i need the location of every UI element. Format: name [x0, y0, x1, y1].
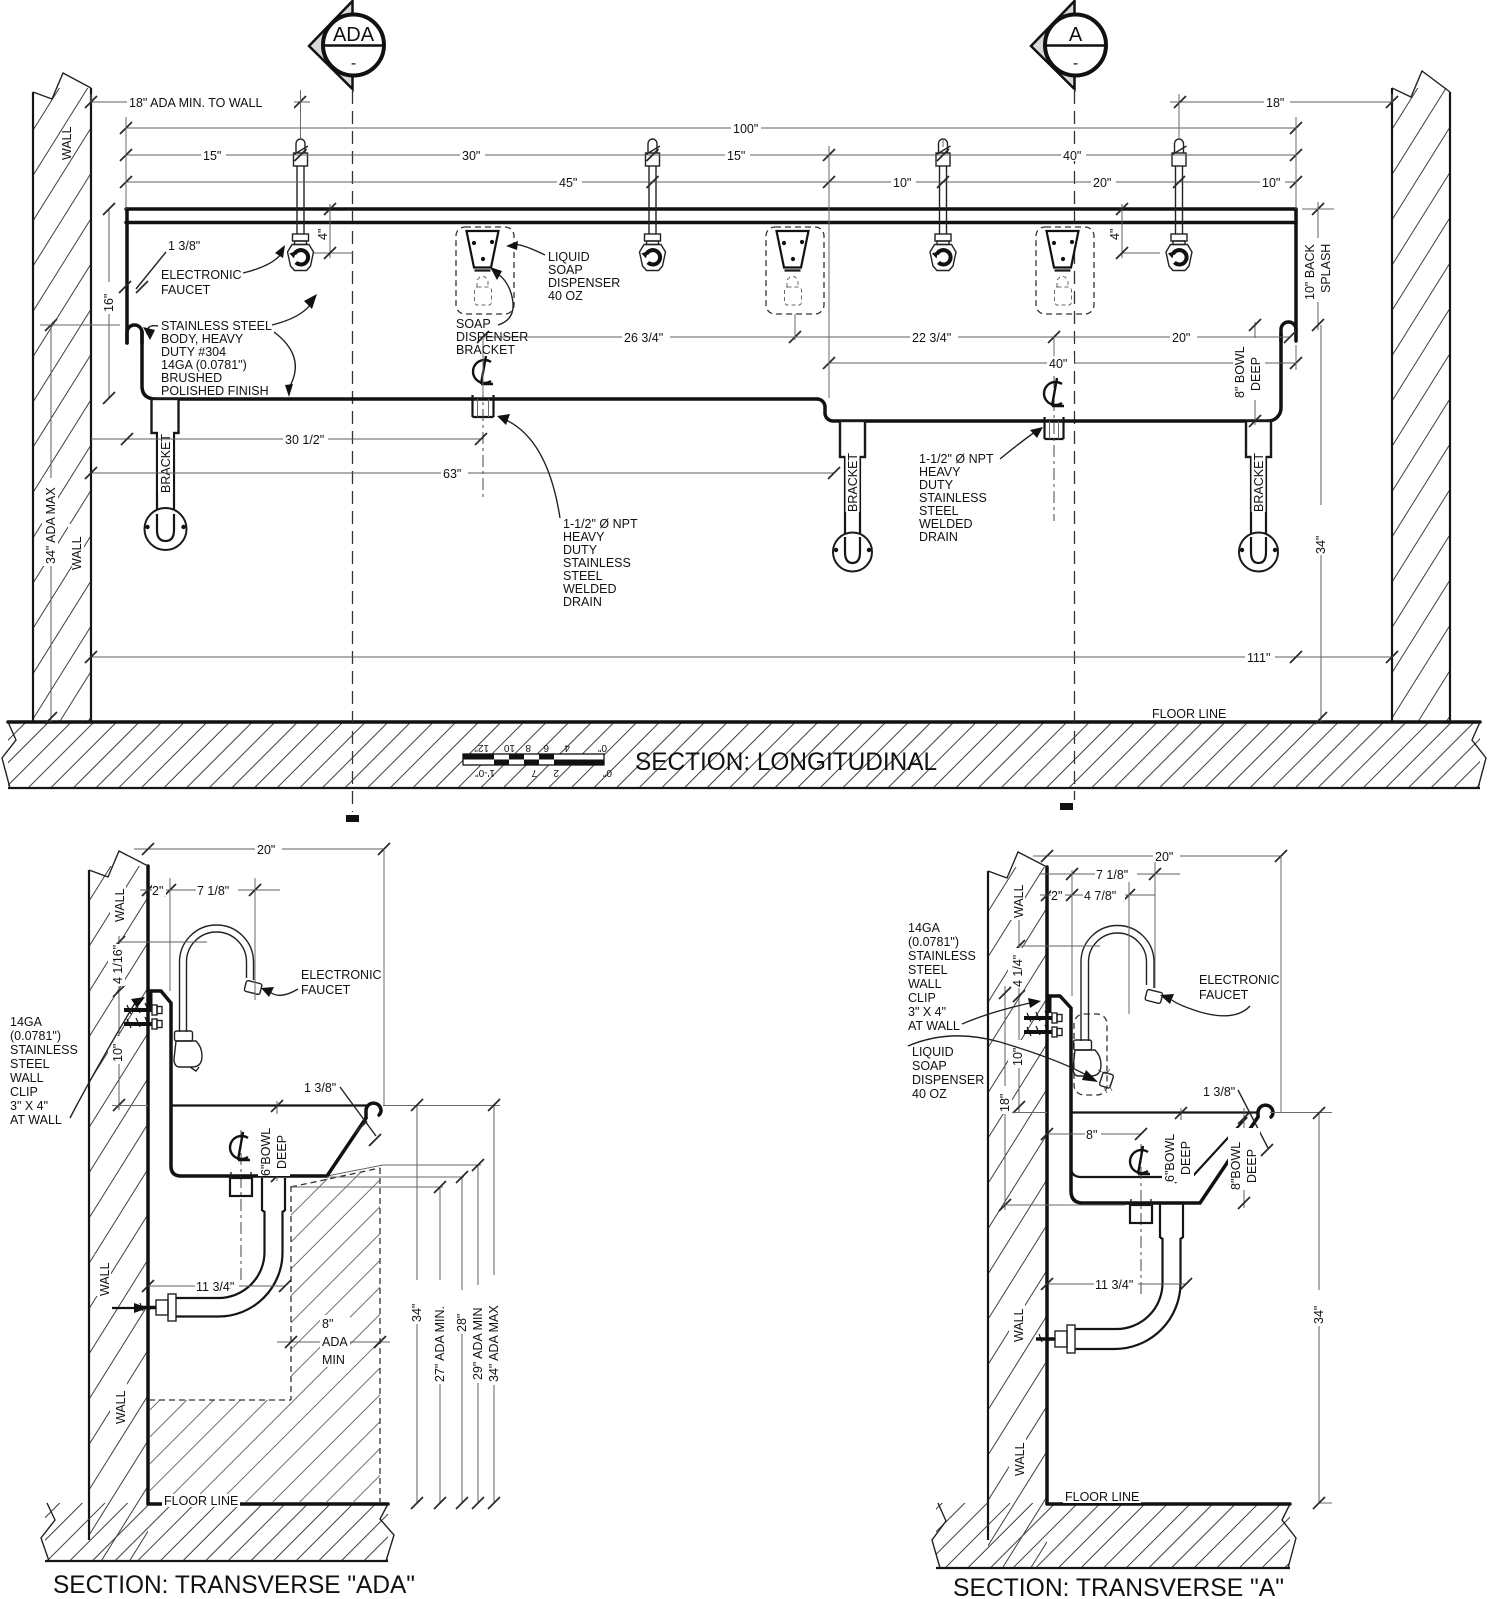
svg-text:AT WALL: AT WALL	[908, 1019, 960, 1033]
svg-text:1 3/8": 1 3/8"	[304, 1081, 336, 1095]
svg-text:DRAIN: DRAIN	[563, 595, 602, 609]
svg-text:14GA: 14GA	[908, 921, 941, 935]
svg-text:WELDED: WELDED	[563, 582, 616, 596]
svg-text:BRACKET: BRACKET	[846, 453, 860, 512]
svg-text:14GA (0.0781"): 14GA (0.0781")	[161, 358, 247, 372]
svg-text:34" ADA MAX: 34" ADA MAX	[44, 487, 58, 564]
svg-text:FAUCET: FAUCET	[1199, 988, 1249, 1002]
svg-text:CLIP: CLIP	[908, 991, 936, 1005]
svg-text:4 1/16": 4 1/16"	[111, 945, 125, 984]
svg-text:30": 30"	[462, 149, 480, 163]
svg-text:-: -	[1073, 55, 1078, 72]
svg-text:STAINLESS: STAINLESS	[919, 491, 987, 505]
svg-text:STAINLESS STEEL: STAINLESS STEEL	[161, 319, 272, 333]
svg-text:12": 12"	[474, 742, 489, 753]
svg-text:-: -	[351, 55, 356, 72]
svg-text:1'-0": 1'-0"	[475, 767, 495, 778]
svg-text:WALL: WALL	[60, 126, 74, 160]
svg-text:DUTY #304: DUTY #304	[161, 345, 226, 359]
svg-text:WELDED: WELDED	[919, 517, 972, 531]
svg-text:SECTION: TRANSVERSE "ADA": SECTION: TRANSVERSE "ADA"	[53, 1571, 415, 1599]
svg-text:A: A	[1069, 24, 1083, 46]
svg-text:SOAP: SOAP	[912, 1059, 947, 1073]
svg-text:16": 16"	[102, 294, 116, 312]
svg-text:26 3/4": 26 3/4"	[624, 331, 663, 345]
svg-text:20": 20"	[257, 843, 275, 857]
svg-text:LIQUID: LIQUID	[912, 1045, 954, 1059]
svg-text:FLOOR LINE: FLOOR LINE	[1152, 707, 1226, 721]
svg-text:4: 4	[564, 742, 570, 753]
svg-text:8"BOWL: 8"BOWL	[1229, 1142, 1243, 1190]
svg-text:ELECTRONIC: ELECTRONIC	[1199, 973, 1280, 987]
svg-text:14GA: 14GA	[10, 1015, 43, 1029]
svg-text:DUTY: DUTY	[919, 478, 954, 492]
svg-text:HEAVY: HEAVY	[563, 530, 605, 544]
svg-text:BRACKET: BRACKET	[456, 343, 515, 357]
svg-text:40 OZ: 40 OZ	[548, 289, 583, 303]
svg-text:FAUCET: FAUCET	[161, 283, 211, 297]
svg-text:18": 18"	[998, 1094, 1012, 1112]
svg-text:20": 20"	[1172, 331, 1190, 345]
svg-text:1 3/8": 1 3/8"	[168, 239, 200, 253]
svg-text:BODY, HEAVY: BODY, HEAVY	[161, 332, 244, 346]
svg-text:15": 15"	[727, 149, 745, 163]
svg-text:34": 34"	[1314, 536, 1328, 554]
svg-text:HEAVY: HEAVY	[919, 465, 961, 479]
svg-text:100": 100"	[733, 122, 758, 136]
svg-text:2: 2	[553, 767, 559, 778]
svg-text:111": 111"	[1247, 651, 1270, 665]
svg-text:AT WALL: AT WALL	[10, 1113, 62, 1127]
svg-text:DISPENSER: DISPENSER	[456, 330, 528, 344]
svg-text:27" ADA MIN.: 27" ADA MIN.	[433, 1306, 447, 1382]
svg-text:28": 28"	[455, 1314, 469, 1332]
svg-text:0": 0"	[602, 767, 612, 778]
svg-text:MIN: MIN	[322, 1353, 345, 1367]
svg-text:4": 4"	[316, 229, 330, 240]
svg-text:1-1/2" Ø NPT: 1-1/2" Ø NPT	[919, 452, 994, 466]
svg-text:CLIP: CLIP	[10, 1085, 38, 1099]
svg-text:2": 2"	[1051, 889, 1062, 903]
svg-text:(0.0781"): (0.0781")	[10, 1029, 61, 1043]
svg-text:SOAP: SOAP	[548, 263, 583, 277]
svg-text:11 3/4": 11 3/4"	[1095, 1278, 1133, 1292]
svg-text:WALL: WALL	[10, 1071, 44, 1085]
svg-text:1 3/8": 1 3/8"	[1203, 1085, 1235, 1099]
svg-text:STEEL: STEEL	[10, 1057, 50, 1071]
svg-text:WALL: WALL	[114, 1390, 128, 1424]
svg-text:34": 34"	[1312, 1306, 1326, 1324]
svg-text:FLOOR LINE: FLOOR LINE	[1065, 1490, 1139, 1504]
svg-text:WALL: WALL	[908, 977, 942, 991]
svg-text:10: 10	[503, 742, 515, 753]
svg-text:40 OZ: 40 OZ	[912, 1087, 947, 1101]
svg-text:40": 40"	[1063, 149, 1081, 163]
svg-text:4 1/4": 4 1/4"	[1011, 955, 1025, 987]
svg-text:STAINLESS: STAINLESS	[10, 1043, 78, 1057]
svg-text:POLISHED FINISH: POLISHED FINISH	[161, 384, 269, 398]
svg-text:DISPENSER: DISPENSER	[548, 276, 620, 290]
svg-text:10": 10"	[111, 1044, 125, 1062]
svg-text:45": 45"	[559, 176, 577, 190]
svg-text:ELECTRONIC: ELECTRONIC	[301, 968, 382, 982]
svg-text:6"BOWL: 6"BOWL	[1163, 1134, 1177, 1182]
svg-text:10" BACK: 10" BACK	[1303, 243, 1317, 300]
svg-text:FLOOR LINE: FLOOR LINE	[164, 1494, 238, 1508]
svg-text:SECTION: TRANSVERSE "A": SECTION: TRANSVERSE "A"	[953, 1574, 1284, 1599]
svg-text:ADA: ADA	[322, 1335, 348, 1349]
svg-text:3" X 4": 3" X 4"	[908, 1005, 946, 1019]
svg-text:ELECTRONIC: ELECTRONIC	[161, 268, 242, 282]
svg-text:6"BOWL: 6"BOWL	[259, 1128, 273, 1176]
svg-text:2": 2"	[152, 884, 163, 898]
svg-text:29" ADA MIN: 29" ADA MIN	[471, 1307, 485, 1380]
svg-text:63": 63"	[443, 467, 461, 481]
svg-text:FAUCET: FAUCET	[301, 983, 351, 997]
svg-text:18" ADA MIN. TO WALL: 18" ADA MIN. TO WALL	[129, 96, 262, 110]
svg-text:18": 18"	[1266, 96, 1284, 110]
svg-text:WALL: WALL	[1012, 1308, 1026, 1342]
svg-text:ADA: ADA	[333, 24, 375, 46]
svg-text:SPLASH: SPLASH	[1319, 244, 1333, 293]
svg-text:STAINLESS: STAINLESS	[908, 949, 976, 963]
svg-text:10": 10"	[893, 176, 911, 190]
svg-text:7 1/8": 7 1/8"	[1096, 868, 1128, 882]
svg-text:8: 8	[525, 742, 531, 753]
svg-text:DEEP: DEEP	[1249, 357, 1263, 391]
svg-text:15": 15"	[203, 149, 221, 163]
svg-text:SECTION: LONGITUDINAL: SECTION: LONGITUDINAL	[635, 748, 937, 776]
svg-text:SOAP: SOAP	[456, 317, 491, 331]
svg-text:DRAIN: DRAIN	[919, 530, 958, 544]
svg-text:4": 4"	[1108, 229, 1122, 240]
svg-text:30 1/2": 30 1/2"	[285, 433, 324, 447]
svg-text:STEEL: STEEL	[908, 963, 948, 977]
svg-text:7: 7	[531, 767, 537, 778]
svg-text:34": 34"	[410, 1304, 424, 1322]
svg-text:WALL: WALL	[98, 1262, 112, 1296]
svg-text:4 7/8": 4 7/8"	[1084, 889, 1116, 903]
svg-text:WALL: WALL	[1013, 1442, 1027, 1476]
svg-text:WALL: WALL	[70, 536, 84, 570]
svg-text:3" X 4": 3" X 4"	[10, 1099, 48, 1113]
svg-text:1-1/2" Ø NPT: 1-1/2" Ø NPT	[563, 517, 638, 531]
svg-text:STEEL: STEEL	[919, 504, 959, 518]
svg-text:20": 20"	[1093, 176, 1111, 190]
svg-text:DEEP: DEEP	[1179, 1141, 1193, 1175]
svg-text:7 1/8": 7 1/8"	[197, 884, 229, 898]
svg-text:BRUSHED: BRUSHED	[161, 371, 222, 385]
svg-text:22 3/4": 22 3/4"	[912, 331, 951, 345]
svg-text:WALL: WALL	[1012, 884, 1026, 918]
svg-text:STAINLESS: STAINLESS	[563, 556, 631, 570]
svg-text:20": 20"	[1155, 850, 1173, 864]
svg-text:BRACKET: BRACKET	[159, 434, 173, 493]
svg-text:40": 40"	[1049, 357, 1067, 371]
svg-text:DEEP: DEEP	[1245, 1149, 1259, 1183]
svg-text:DISPENSER: DISPENSER	[912, 1073, 984, 1087]
svg-text:6: 6	[543, 742, 549, 753]
svg-text:(0.0781"): (0.0781")	[908, 935, 959, 949]
svg-text:8" BOWL: 8" BOWL	[1233, 346, 1247, 398]
svg-text:STEEL: STEEL	[563, 569, 603, 583]
svg-text:BRACKET: BRACKET	[1252, 453, 1266, 512]
svg-text:DUTY: DUTY	[563, 543, 598, 557]
svg-text:10": 10"	[1262, 176, 1280, 190]
svg-text:0": 0"	[597, 742, 607, 753]
svg-text:WALL: WALL	[113, 888, 127, 922]
svg-text:34" ADA MAX: 34" ADA MAX	[487, 1305, 501, 1382]
svg-text:LIQUID: LIQUID	[548, 250, 590, 264]
svg-text:8": 8"	[1086, 1128, 1097, 1142]
svg-text:10": 10"	[1011, 1048, 1025, 1066]
svg-text:11 3/4": 11 3/4"	[196, 1280, 234, 1294]
svg-text:DEEP: DEEP	[275, 1135, 289, 1169]
svg-text:8": 8"	[322, 1317, 333, 1331]
